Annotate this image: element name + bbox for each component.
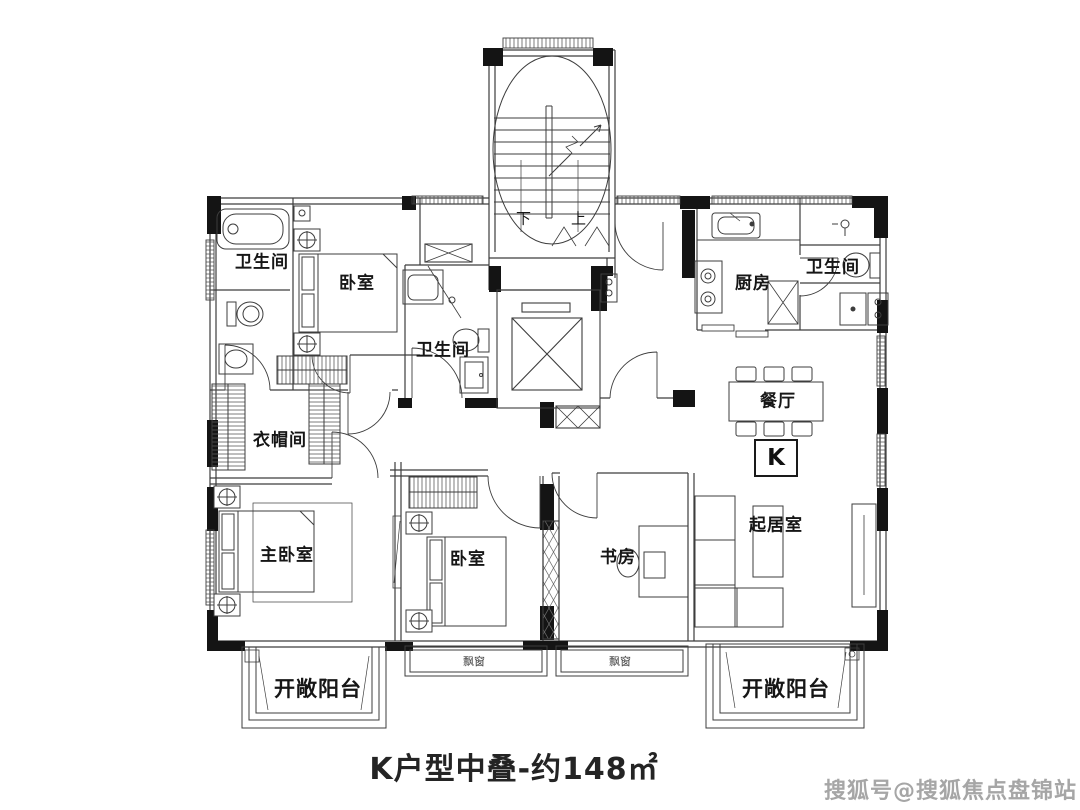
room-label-bath-center: 卫生间 — [416, 336, 470, 361]
room-label-living: 起居室 — [749, 511, 803, 536]
floorplan-page: 卫生间 卧室 卫生间 厨房 卫生间 餐厅 衣帽间 主卧室 卧室 书房 起居室 开… — [0, 0, 1080, 810]
staircase — [493, 56, 611, 246]
room-label-master-bedroom: 主卧室 — [260, 541, 314, 566]
bay-window-label-right: 飘窗 — [609, 653, 631, 669]
room-label-bath-top-right: 卫生间 — [806, 253, 860, 278]
room-label-cloakroom: 衣帽间 — [253, 426, 307, 451]
room-label-bedroom-bottom: 卧室 — [450, 545, 486, 570]
watermark-text: 搜狐号@搜狐焦点盘锦站 — [824, 773, 1077, 805]
room-label-bedroom-top: 卧室 — [339, 269, 375, 294]
room-label-dining: 餐厅 — [760, 387, 796, 412]
room-label-balcony-right: 开敞阳台 — [742, 673, 830, 703]
room-label-study: 书房 — [600, 543, 636, 568]
bathroom-top-left-fixtures — [217, 209, 289, 374]
unit-type-badge: K — [754, 439, 798, 477]
stair-down-label: 下 — [516, 208, 532, 229]
plan-title: K户型中叠-约148㎡ — [369, 744, 658, 788]
stair-up-label: 上 — [571, 208, 587, 229]
room-label-kitchen: 厨房 — [735, 269, 771, 294]
bathroom-center-fixtures — [403, 266, 489, 393]
room-label-balcony-left: 开敞阳台 — [274, 673, 362, 703]
floor-plan-drawing — [0, 0, 1080, 810]
room-label-bath-top-left: 卫生间 — [235, 248, 289, 273]
bay-window-label-left: 飘窗 — [463, 653, 485, 669]
